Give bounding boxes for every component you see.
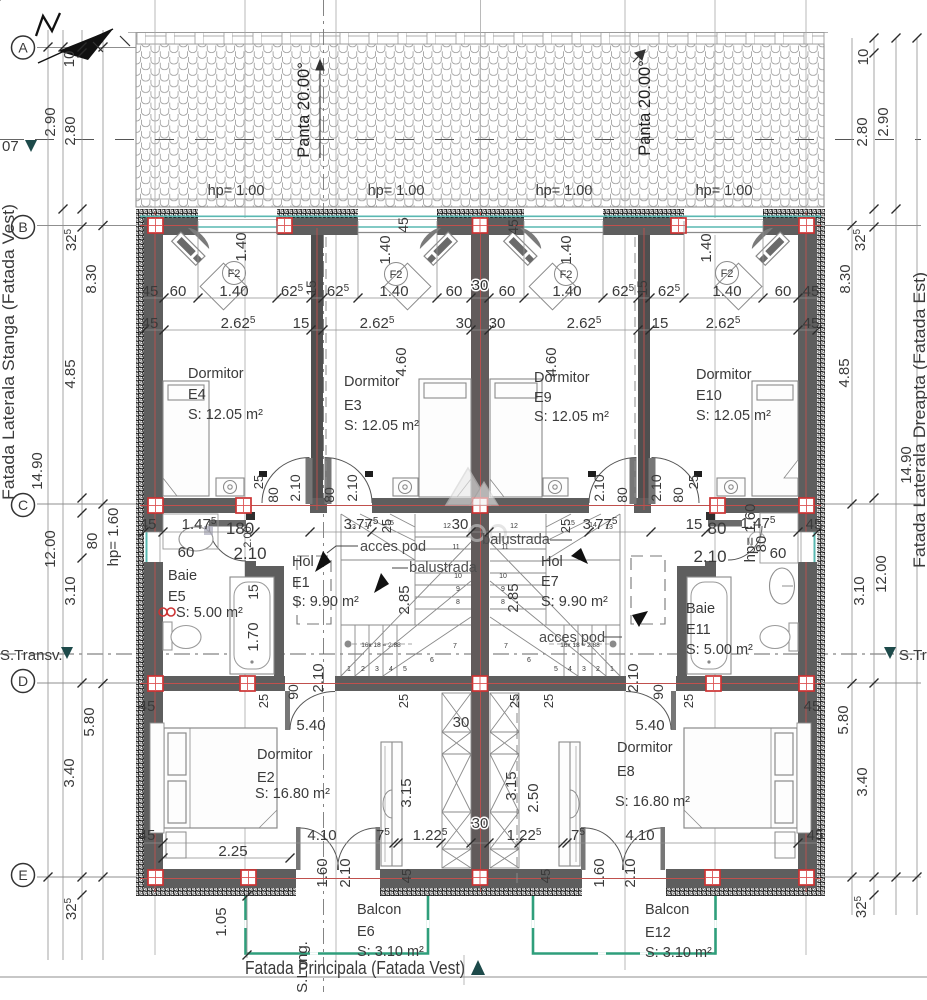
- svg-text:2.10: 2.10: [591, 474, 607, 501]
- svg-text:Dormitor: Dormitor: [696, 367, 752, 383]
- svg-text:45: 45: [139, 698, 156, 715]
- svg-text:Fatada Laterala Dreapta (Fatad: Fatada Laterala Dreapta (Fatada Est): [910, 272, 927, 568]
- svg-text:E10: E10: [696, 388, 722, 404]
- svg-text:45: 45: [399, 869, 414, 883]
- svg-text:12: 12: [443, 523, 451, 530]
- svg-text:5.40: 5.40: [296, 717, 325, 734]
- svg-text:4: 4: [389, 666, 393, 673]
- svg-text:60: 60: [499, 283, 516, 300]
- svg-text:6: 6: [430, 657, 434, 664]
- svg-text:5: 5: [554, 666, 558, 673]
- svg-text:12.00: 12.00: [42, 530, 59, 568]
- svg-text:16x 18 = 2.88: 16x 18 = 2.88: [361, 642, 401, 649]
- svg-text:F2: F2: [390, 269, 403, 281]
- svg-text:Dormitor: Dormitor: [188, 366, 244, 382]
- svg-text:S: 12.05 m²: S: 12.05 m²: [534, 409, 609, 425]
- svg-text:Hol: Hol: [541, 554, 563, 570]
- svg-text:E4: E4: [188, 387, 206, 403]
- svg-text:5.80: 5.80: [835, 705, 852, 734]
- svg-text:F2: F2: [560, 269, 573, 281]
- svg-text:3.40: 3.40: [61, 758, 78, 787]
- svg-text:25: 25: [681, 694, 696, 708]
- svg-text:Dormitor: Dormitor: [344, 374, 400, 390]
- svg-text:3.15: 3.15: [503, 771, 520, 800]
- svg-text:1: 1: [610, 666, 614, 673]
- svg-text:S: 3.10 m²: S: 3.10 m²: [645, 945, 712, 961]
- svg-text:80: 80: [265, 487, 281, 503]
- svg-text:hp= 1.60: hp= 1.60: [742, 504, 759, 563]
- svg-text:6: 6: [527, 657, 531, 664]
- svg-text:acces pod: acces pod: [360, 539, 426, 555]
- svg-text:1.40: 1.40: [558, 235, 575, 264]
- svg-text:S: 12.05 m²: S: 12.05 m²: [188, 407, 263, 423]
- svg-text:2.10: 2.10: [344, 474, 360, 501]
- svg-text:E2: E2: [257, 770, 275, 786]
- svg-text:S: 16.80 m²: S: 16.80 m²: [255, 786, 330, 802]
- svg-text:balustrada: balustrada: [409, 560, 478, 576]
- svg-text:3: 3: [375, 666, 379, 673]
- svg-text:S: 9.90 m²: S: 9.90 m²: [541, 594, 608, 610]
- svg-text:80: 80: [670, 487, 686, 503]
- svg-text:E7: E7: [541, 574, 559, 590]
- svg-text:45: 45: [142, 315, 159, 332]
- svg-text:5.80: 5.80: [81, 707, 98, 736]
- svg-text:E11: E11: [686, 622, 711, 638]
- svg-text:D: D: [18, 673, 28, 689]
- svg-text:S: 9.90 m²: S: 9.90 m²: [292, 594, 359, 610]
- svg-text:25: 25: [251, 475, 266, 489]
- svg-text:8: 8: [456, 599, 460, 606]
- svg-text:2.90: 2.90: [42, 107, 59, 136]
- svg-text:C: C: [18, 497, 28, 513]
- svg-text:8.30: 8.30: [837, 264, 854, 293]
- svg-text:2.10: 2.10: [287, 474, 303, 501]
- svg-text:90: 90: [650, 684, 666, 700]
- svg-text:15: 15: [293, 315, 310, 332]
- svg-text:45: 45: [142, 283, 159, 300]
- svg-text:S: 5.00 m²: S: 5.00 m²: [176, 605, 243, 621]
- svg-text:45: 45: [395, 217, 411, 233]
- svg-text:S: 16.80 m²: S: 16.80 m²: [615, 794, 690, 810]
- svg-text:2.90: 2.90: [875, 107, 892, 136]
- svg-text:45: 45: [803, 315, 820, 332]
- svg-text:2.85: 2.85: [505, 583, 522, 612]
- svg-text:S: 5.00 m²: S: 5.00 m²: [686, 642, 753, 658]
- svg-text:E9: E9: [534, 390, 552, 406]
- svg-text:2: 2: [596, 666, 600, 673]
- svg-text:8.30: 8.30: [83, 264, 100, 293]
- svg-text:1.40: 1.40: [698, 233, 715, 262]
- svg-text:45: 45: [804, 698, 821, 715]
- svg-text:25: 25: [686, 475, 701, 489]
- svg-text:S: 12.05 m²: S: 12.05 m²: [696, 408, 771, 424]
- svg-text:3.15: 3.15: [398, 778, 415, 807]
- svg-text:1.40: 1.40: [552, 283, 581, 300]
- svg-text:25: 25: [256, 694, 271, 708]
- svg-text:Fatada Principala (Fatada Vest: Fatada Principala (Fatada Vest): [245, 958, 465, 978]
- svg-text:11: 11: [452, 544, 459, 551]
- svg-text:E5: E5: [168, 589, 186, 605]
- svg-text:S.Transv.: S.Transv.: [0, 647, 63, 664]
- svg-text:2.10: 2.10: [693, 547, 726, 566]
- svg-text:45: 45: [538, 869, 553, 883]
- svg-text:Dormitor: Dormitor: [534, 370, 590, 386]
- svg-text:B: B: [18, 219, 27, 235]
- svg-text:12.00: 12.00: [873, 555, 890, 593]
- svg-text:60: 60: [178, 544, 195, 561]
- svg-text:hp= 1.00: hp= 1.00: [368, 183, 425, 199]
- svg-text:45: 45: [139, 827, 156, 844]
- svg-text:2.10: 2.10: [337, 858, 354, 887]
- svg-text:Balcon: Balcon: [357, 902, 401, 918]
- svg-text:2.80: 2.80: [62, 116, 79, 145]
- svg-text:60: 60: [170, 283, 187, 300]
- svg-text:1.40: 1.40: [712, 283, 741, 300]
- svg-text:25: 25: [558, 519, 573, 533]
- svg-text:80: 80: [708, 519, 727, 538]
- svg-text:3.40: 3.40: [854, 767, 871, 796]
- svg-text:60: 60: [770, 545, 787, 562]
- svg-text:1.40: 1.40: [379, 283, 408, 300]
- svg-text:30: 30: [456, 315, 473, 332]
- svg-text:4: 4: [568, 666, 572, 673]
- svg-text:1.40: 1.40: [219, 283, 248, 300]
- svg-text:2.50: 2.50: [525, 783, 542, 812]
- svg-text:30: 30: [453, 714, 470, 731]
- svg-text:90: 90: [285, 684, 301, 700]
- svg-text:1.60: 1.60: [314, 858, 331, 887]
- svg-text:hp= 1.00: hp= 1.00: [536, 183, 593, 199]
- svg-text:4.60: 4.60: [393, 347, 410, 376]
- svg-text:10: 10: [61, 51, 78, 68]
- svg-text:12: 12: [510, 523, 518, 530]
- svg-text:45: 45: [806, 516, 823, 533]
- svg-text:E8: E8: [617, 764, 635, 780]
- svg-text:80: 80: [321, 487, 337, 503]
- svg-text:2.80: 2.80: [854, 117, 871, 146]
- svg-text:Fatada Laterala Stanga (Fatada: Fatada Laterala Stanga (Fatada Vest): [0, 204, 18, 500]
- svg-text:45: 45: [140, 516, 157, 533]
- svg-text:15: 15: [634, 280, 650, 296]
- svg-text:2.10: 2.10: [625, 663, 642, 692]
- svg-text:45: 45: [807, 827, 824, 844]
- svg-text:45: 45: [803, 283, 820, 300]
- svg-text:25: 25: [379, 519, 394, 533]
- svg-text:1.70: 1.70: [245, 622, 262, 651]
- svg-text:80: 80: [753, 536, 770, 553]
- svg-text:80: 80: [84, 533, 101, 550]
- svg-text:hp= 1.60: hp= 1.60: [105, 508, 122, 567]
- svg-text:60: 60: [446, 283, 463, 300]
- svg-text:E: E: [18, 867, 27, 883]
- svg-text:45: 45: [505, 219, 521, 235]
- svg-text:1.05: 1.05: [213, 907, 230, 936]
- svg-text:4.85: 4.85: [62, 359, 79, 388]
- svg-text:E3: E3: [344, 398, 362, 414]
- svg-text:9: 9: [456, 586, 460, 593]
- svg-text:Balcon: Balcon: [645, 902, 689, 918]
- svg-text:4.10: 4.10: [307, 827, 336, 844]
- svg-text:30: 30: [489, 315, 506, 332]
- svg-text:S.Tr: S.Tr: [899, 647, 927, 664]
- svg-text:Dormitor: Dormitor: [617, 740, 673, 756]
- svg-text:acces pod: acces pod: [539, 630, 605, 646]
- svg-text:Hol: Hol: [292, 554, 314, 570]
- svg-text:15: 15: [652, 315, 669, 332]
- svg-text:Dormitor: Dormitor: [257, 747, 313, 763]
- svg-text:3.10: 3.10: [62, 576, 79, 605]
- svg-text:30: 30: [472, 815, 489, 832]
- svg-text:5: 5: [403, 666, 407, 673]
- svg-text:15: 15: [686, 516, 703, 533]
- svg-text:80: 80: [614, 487, 630, 503]
- svg-text:2.10: 2.10: [310, 663, 327, 692]
- svg-text:25: 25: [396, 694, 411, 708]
- svg-text:14.90: 14.90: [29, 452, 46, 490]
- svg-text:60: 60: [775, 283, 792, 300]
- svg-text:F2: F2: [228, 268, 241, 280]
- svg-text:2.25: 2.25: [218, 843, 247, 860]
- svg-text:15: 15: [245, 584, 261, 600]
- svg-text:1.60: 1.60: [591, 858, 608, 887]
- svg-text:1: 1: [347, 666, 351, 673]
- svg-text:1.40: 1.40: [233, 232, 250, 261]
- svg-text:5.40: 5.40: [635, 717, 664, 734]
- svg-text:1.40: 1.40: [377, 235, 394, 264]
- svg-text:3: 3: [582, 666, 586, 673]
- svg-text:25: 25: [507, 694, 522, 708]
- svg-text:hp= 1.00: hp= 1.00: [208, 183, 265, 199]
- svg-text:Panta 20.00°: Panta 20.00°: [295, 62, 313, 158]
- svg-text:7: 7: [504, 643, 508, 650]
- svg-text:F2: F2: [721, 268, 734, 280]
- svg-text:10: 10: [855, 49, 872, 66]
- svg-text:4.10: 4.10: [625, 827, 654, 844]
- svg-text:2.10: 2.10: [622, 858, 639, 887]
- svg-text:2: 2: [361, 666, 365, 673]
- svg-text:S: 12.05 m²: S: 12.05 m²: [344, 418, 419, 434]
- svg-text:A: A: [18, 40, 28, 56]
- svg-text:15: 15: [303, 280, 319, 296]
- svg-text:30: 30: [452, 516, 469, 533]
- svg-text:E1: E1: [292, 575, 310, 591]
- svg-text:7: 7: [453, 643, 457, 650]
- svg-text:Baie: Baie: [686, 601, 715, 617]
- svg-text:3.10: 3.10: [851, 576, 868, 605]
- svg-text:2.00: 2.00: [242, 526, 254, 547]
- svg-text:E6: E6: [357, 924, 375, 940]
- svg-text:hp= 1.00: hp= 1.00: [696, 183, 753, 199]
- svg-text:10: 10: [499, 573, 507, 580]
- svg-text:30: 30: [472, 277, 489, 294]
- svg-text:25: 25: [541, 694, 556, 708]
- svg-text:Panta 20.00°: Panta 20.00°: [636, 60, 654, 156]
- svg-text:07: 07: [2, 138, 19, 155]
- svg-text:E12: E12: [645, 925, 671, 941]
- svg-text:balustrada: balustrada: [482, 532, 551, 548]
- svg-text:Baie: Baie: [168, 568, 197, 584]
- svg-text:2.85: 2.85: [396, 585, 413, 614]
- svg-text:2.10: 2.10: [648, 474, 664, 501]
- svg-text:4.85: 4.85: [836, 358, 853, 387]
